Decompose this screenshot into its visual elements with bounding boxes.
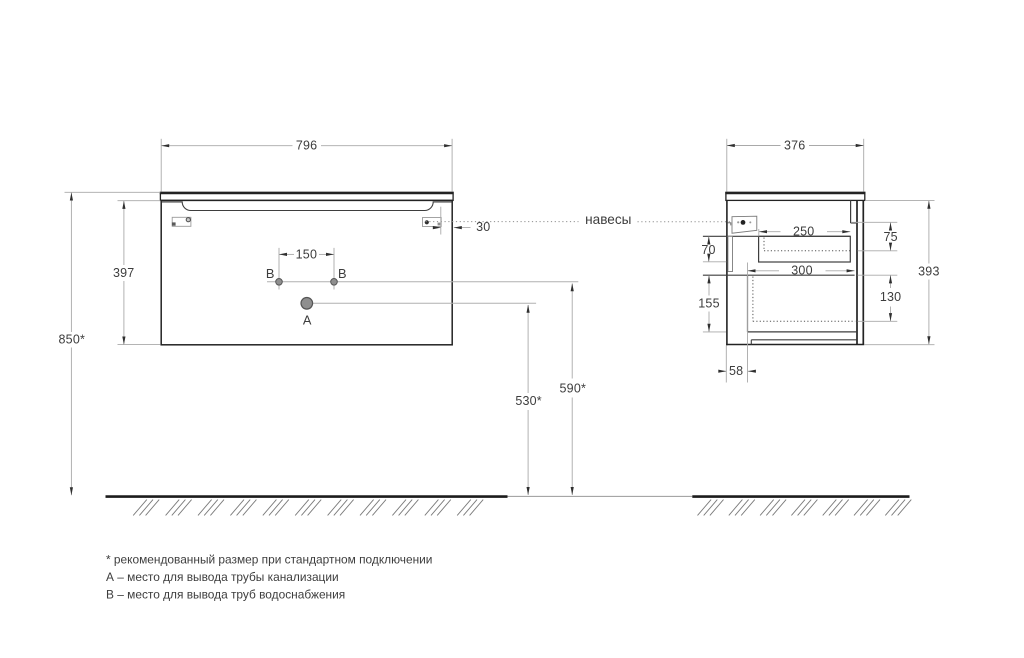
svg-text:300: 300: [791, 264, 812, 278]
svg-text:393: 393: [918, 265, 939, 279]
svg-text:А – место для вывода трубы кан: А – место для вывода трубы канализации: [106, 570, 339, 584]
svg-text:530*: 530*: [515, 394, 542, 408]
svg-text:590*: 590*: [560, 382, 587, 396]
svg-text:796: 796: [296, 139, 317, 153]
svg-text:В – место для вывода труб водо: В – место для вывода труб водоснабжения: [106, 588, 345, 602]
svg-text:А: А: [303, 312, 312, 327]
svg-text:* рекомендованный размер при с: * рекомендованный размер при стандартном…: [106, 553, 432, 567]
svg-text:70: 70: [701, 243, 715, 257]
svg-text:В: В: [266, 266, 275, 281]
svg-text:30: 30: [476, 220, 490, 234]
svg-text:В: В: [338, 266, 347, 281]
svg-text:75: 75: [883, 230, 897, 244]
svg-text:850*: 850*: [59, 333, 86, 347]
svg-text:155: 155: [698, 296, 719, 310]
svg-text:250: 250: [793, 224, 814, 238]
svg-text:397: 397: [113, 266, 134, 280]
svg-text:376: 376: [784, 138, 805, 152]
svg-text:навесы: навесы: [585, 212, 631, 227]
svg-text:150: 150: [296, 247, 317, 261]
svg-text:58: 58: [729, 364, 743, 378]
svg-text:130: 130: [880, 290, 901, 304]
